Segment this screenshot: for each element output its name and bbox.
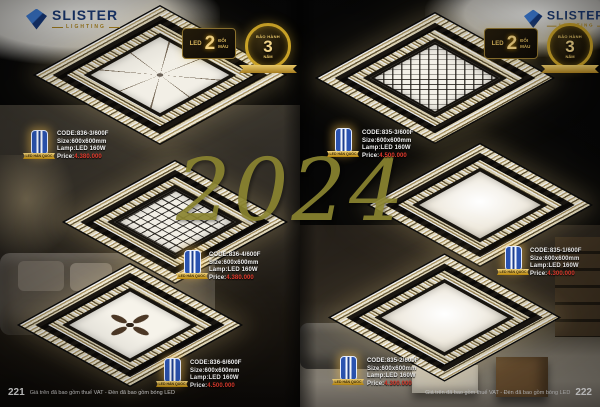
product-price: Price:4.300.000: [530, 271, 582, 279]
warranty-medal: BẢO HÀNH 3 NĂM: [541, 23, 599, 73]
korean-led-ribbon-label: LED HÀN QUỐC: [23, 153, 55, 159]
product-lamp: Lamp:LED 160W: [367, 373, 419, 381]
brand-name: SLISTER: [52, 8, 120, 22]
price-value: 4.300.000: [384, 381, 412, 387]
product-code: CODE:835-2/600F: [367, 358, 419, 366]
led-badge-label: LED: [492, 41, 504, 47]
korean-led-badge: LED HÀN QUỐC: [175, 250, 209, 279]
korean-led-badge: LED HÀN QUỐC: [155, 358, 189, 387]
product-size: Size:600x600mm: [57, 139, 109, 147]
product-size: Size:600x600mm: [367, 366, 419, 374]
led-strip-icon: [335, 128, 352, 153]
price-value: 4.380.000: [74, 154, 102, 160]
product-lamp: Lamp:LED 160W: [209, 267, 261, 275]
product-info-3: CODE:836-6/600F Size:600x600mm Lamp:LED …: [190, 360, 242, 390]
product-lamp: Lamp:LED 160W: [57, 146, 109, 154]
product-lamp: Lamp:LED 160W: [530, 263, 582, 271]
price-label: Price:: [367, 381, 384, 387]
price-label: Price:: [190, 383, 207, 389]
warranty-medal-circle: BẢO HÀNH 3 NĂM: [547, 23, 593, 69]
catalog-spread: SLISTER LIGHTING SLISTER LIGHTING LED 2 …: [0, 0, 600, 407]
product-price: Price:4.500.000: [190, 383, 242, 391]
product-lamp: Lamp:LED 160W: [190, 375, 242, 383]
led-two-color-badge: LED 2 ĐỔI MÀU: [182, 28, 236, 59]
product-code: CODE:836-3/600F: [57, 131, 109, 139]
product-size: Size:600x600mm: [209, 260, 261, 268]
price-value: 4.500.000: [207, 383, 235, 389]
korean-led-ribbon-label: LED HÀN QUỐC: [332, 379, 364, 385]
led-badge-sub-bottom: MÀU: [218, 44, 228, 50]
warranty-unit: NĂM: [565, 54, 574, 59]
korean-led-badge: LED HÀN QUỐC: [22, 130, 56, 159]
slister-logo-icon: [26, 9, 47, 30]
led-badge-count: 2: [205, 34, 216, 53]
product-info-2: CODE:836-4/600F Size:600x600mm Lamp:LED …: [209, 252, 261, 282]
led-badge-sub-bottom: MÀU: [520, 44, 530, 50]
product-size: Size:600x600mm: [190, 368, 242, 376]
slister-logo-icon: [524, 9, 542, 27]
warranty-ribbon: [541, 65, 599, 73]
product-info-6: CODE:835-2/600F Size:600x600mm Lamp:LED …: [367, 358, 419, 388]
warranty-years: 3: [565, 39, 574, 54]
led-strip-icon: [184, 250, 201, 275]
price-label: Price:: [57, 154, 74, 160]
warranty-medal-circle: BẢO HÀNH 3 NĂM: [245, 23, 291, 69]
price-label: Price:: [530, 271, 547, 277]
tagline-text: LIGHTING: [66, 24, 106, 30]
brand-name: SLISTER: [547, 9, 600, 21]
led-two-color-badge: LED 2 ĐỔI MÀU: [484, 28, 538, 59]
product-price: Price:4.380.000: [57, 154, 109, 162]
vat-caption: Giá trên đã bao gồm thuế VAT - Đèn đã ba…: [30, 390, 175, 396]
product-size: Size:600x600mm: [530, 256, 582, 264]
brand-tagline: LIGHTING: [52, 24, 120, 30]
warranty-ribbon: [239, 65, 297, 73]
product-lamp: Lamp:LED 160W: [362, 145, 414, 153]
korean-led-badge: LED HÀN QUỐC: [331, 356, 365, 385]
product-code: CODE:836-4/600F: [209, 252, 261, 260]
product-info-1: CODE:836-3/600F Size:600x600mm Lamp:LED …: [57, 131, 109, 161]
price-label: Price:: [209, 275, 226, 281]
led-strip-icon: [340, 356, 357, 381]
korean-led-ribbon-label: LED HÀN QUỐC: [176, 273, 208, 279]
page-number-left: 221: [8, 387, 25, 398]
led-strip-icon: [164, 358, 181, 383]
led-badge-label: LED: [190, 41, 202, 47]
tagline-rule: [109, 27, 120, 28]
right-page-footer: Giá trên đã bao gồm thuế VAT - Đèn đã ba…: [425, 387, 592, 398]
warranty-unit: NĂM: [263, 54, 272, 59]
korean-led-badge: LED HÀN QUỐC: [496, 246, 530, 275]
led-badge-subtext: ĐỔI MÀU: [520, 38, 530, 49]
led-strip-icon: [505, 246, 522, 271]
warranty-medal: BẢO HÀNH 3 NĂM: [239, 23, 297, 73]
product-code: CODE:835-1/600F: [530, 248, 582, 256]
led-badge-subtext: ĐỔI MÀU: [218, 38, 228, 49]
korean-led-ribbon-label: LED HÀN QUỐC: [497, 269, 529, 275]
product-size: Size:600x600mm: [362, 138, 414, 146]
page-number-right: 222: [575, 387, 592, 398]
product-code: CODE:835-3/600F: [362, 130, 414, 138]
warranty-years: 3: [263, 39, 272, 54]
product-price: Price:4.500.000: [362, 153, 414, 161]
slister-logo: SLISTER LIGHTING: [26, 8, 120, 30]
tagline-rule: [52, 27, 63, 28]
vat-caption: Giá trên đã bao gồm thuế VAT - Đèn đã ba…: [425, 390, 570, 396]
price-value: 4.300.000: [547, 271, 575, 277]
left-page-footer: 221 Giá trên đã bao gồm thuế VAT - Đèn đ…: [8, 387, 175, 398]
product-info-5: CODE:835-1/600F Size:600x600mm Lamp:LED …: [530, 248, 582, 278]
led-strip-icon: [31, 130, 48, 155]
price-value: 4.380.000: [226, 275, 254, 281]
price-value: 4.500.000: [379, 153, 407, 159]
product-price: Price:4.380.000: [209, 275, 261, 283]
price-label: Price:: [362, 153, 379, 159]
led-badge-count: 2: [507, 34, 518, 53]
product-price: Price:4.300.000: [367, 381, 419, 389]
product-info-4: CODE:835-3/600F Size:600x600mm Lamp:LED …: [362, 130, 414, 160]
korean-led-ribbon-label: LED HÀN QUỐC: [327, 151, 359, 157]
product-code: CODE:836-6/600F: [190, 360, 242, 368]
korean-led-badge: LED HÀN QUỐC: [326, 128, 360, 157]
